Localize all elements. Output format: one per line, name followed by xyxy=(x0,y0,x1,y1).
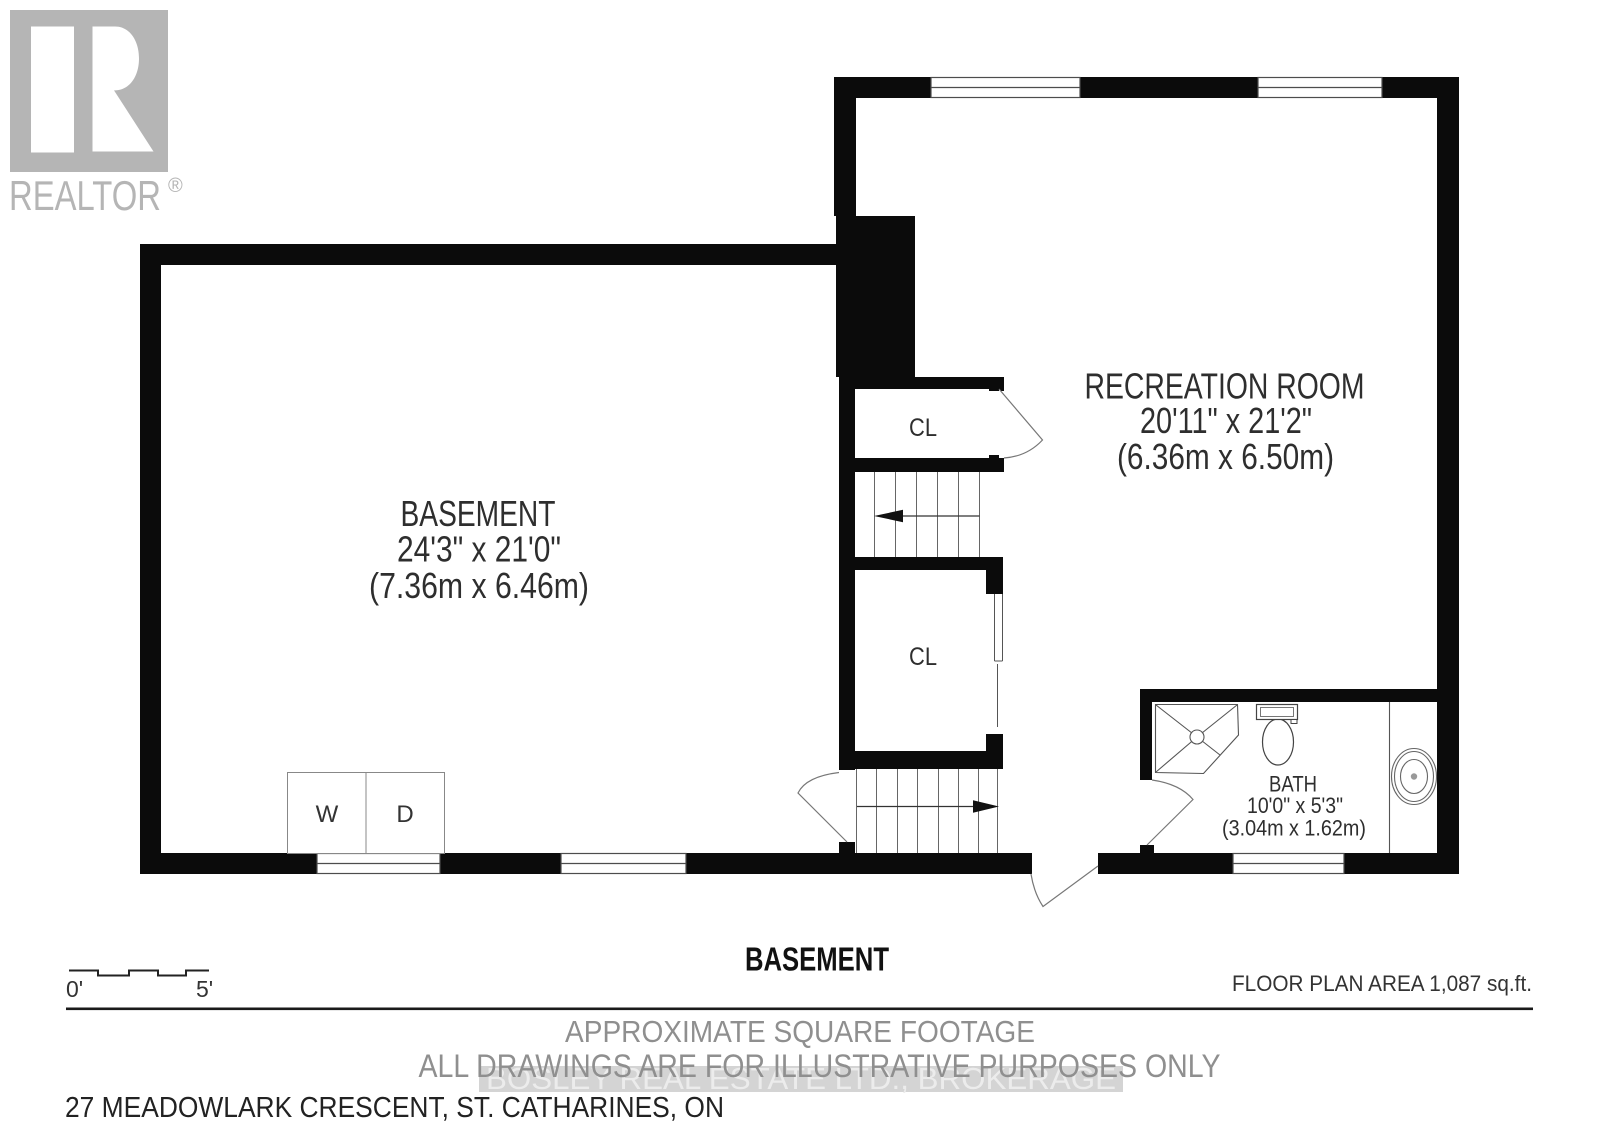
svg-text:REALTOR: REALTOR xyxy=(9,172,161,219)
svg-text:CL: CL xyxy=(909,643,937,671)
svg-text:0': 0' xyxy=(66,976,83,1002)
svg-text:(7.36m x 6.46m): (7.36m x 6.46m) xyxy=(369,565,589,606)
svg-text:5': 5' xyxy=(196,976,213,1002)
svg-text:(3.04m x 1.62m): (3.04m x 1.62m) xyxy=(1222,816,1366,841)
svg-text:APPROXIMATE SQUARE FOOTAGE: APPROXIMATE SQUARE FOOTAGE xyxy=(565,1014,1035,1049)
svg-text:BASEMENT: BASEMENT xyxy=(745,941,889,978)
svg-text:W: W xyxy=(316,801,339,828)
svg-text:ALL DRAWINGS ARE FOR ILLUSTRAT: ALL DRAWINGS ARE FOR ILLUSTRATIVE PURPOS… xyxy=(419,1048,1221,1084)
svg-text:24'3" x 21'0": 24'3" x 21'0" xyxy=(397,529,561,570)
svg-text:D: D xyxy=(396,801,413,828)
svg-text:CL: CL xyxy=(909,414,937,442)
svg-text:(6.36m x 6.50m): (6.36m x 6.50m) xyxy=(1117,436,1334,477)
svg-text:FLOOR PLAN AREA 1,087 sq.ft.: FLOOR PLAN AREA 1,087 sq.ft. xyxy=(1232,971,1532,996)
svg-text:20'11" x 21'2": 20'11" x 21'2" xyxy=(1140,400,1312,441)
svg-text:®: ® xyxy=(168,175,183,197)
svg-text:27 MEADOWLARK CRESCENT, ST. CA: 27 MEADOWLARK CRESCENT, ST. CATHARINES, … xyxy=(65,1092,724,1124)
svg-text:10'0" x 5'3": 10'0" x 5'3" xyxy=(1247,793,1343,818)
